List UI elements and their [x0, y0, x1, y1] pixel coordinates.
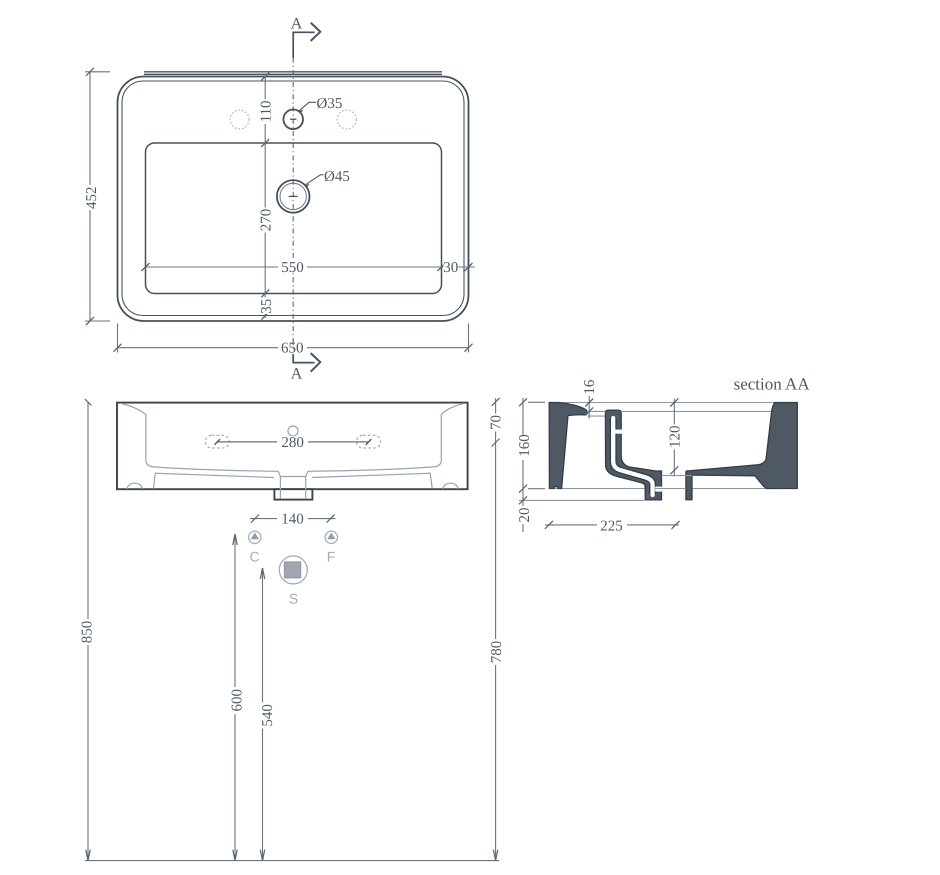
svg-text:452: 452 [84, 186, 100, 209]
svg-text:Ø45: Ø45 [324, 169, 350, 185]
svg-text:20: 20 [517, 508, 533, 523]
svg-text:780: 780 [489, 641, 505, 664]
svg-text:F: F [327, 549, 336, 565]
svg-text:Ø35: Ø35 [317, 96, 343, 112]
svg-text:225: 225 [600, 518, 623, 534]
svg-text:35: 35 [259, 299, 275, 314]
svg-text:110: 110 [258, 101, 274, 123]
svg-text:600: 600 [229, 689, 245, 712]
svg-text:540: 540 [260, 704, 276, 727]
svg-text:850: 850 [79, 621, 95, 644]
svg-text:section AA: section AA [734, 375, 811, 394]
svg-text:270: 270 [258, 209, 274, 232]
svg-text:A: A [291, 366, 303, 383]
svg-text:C: C [249, 549, 259, 565]
svg-text:70: 70 [488, 415, 504, 430]
svg-text:120: 120 [667, 426, 683, 449]
svg-text:140: 140 [281, 511, 304, 527]
svg-text:160: 160 [517, 434, 533, 457]
svg-text:S: S [289, 591, 298, 607]
svg-text:280: 280 [281, 435, 304, 451]
svg-text:650: 650 [281, 341, 304, 357]
svg-text:550: 550 [281, 260, 304, 276]
svg-text:30: 30 [443, 260, 458, 276]
svg-text:16: 16 [582, 379, 598, 395]
svg-text:A: A [291, 16, 303, 33]
